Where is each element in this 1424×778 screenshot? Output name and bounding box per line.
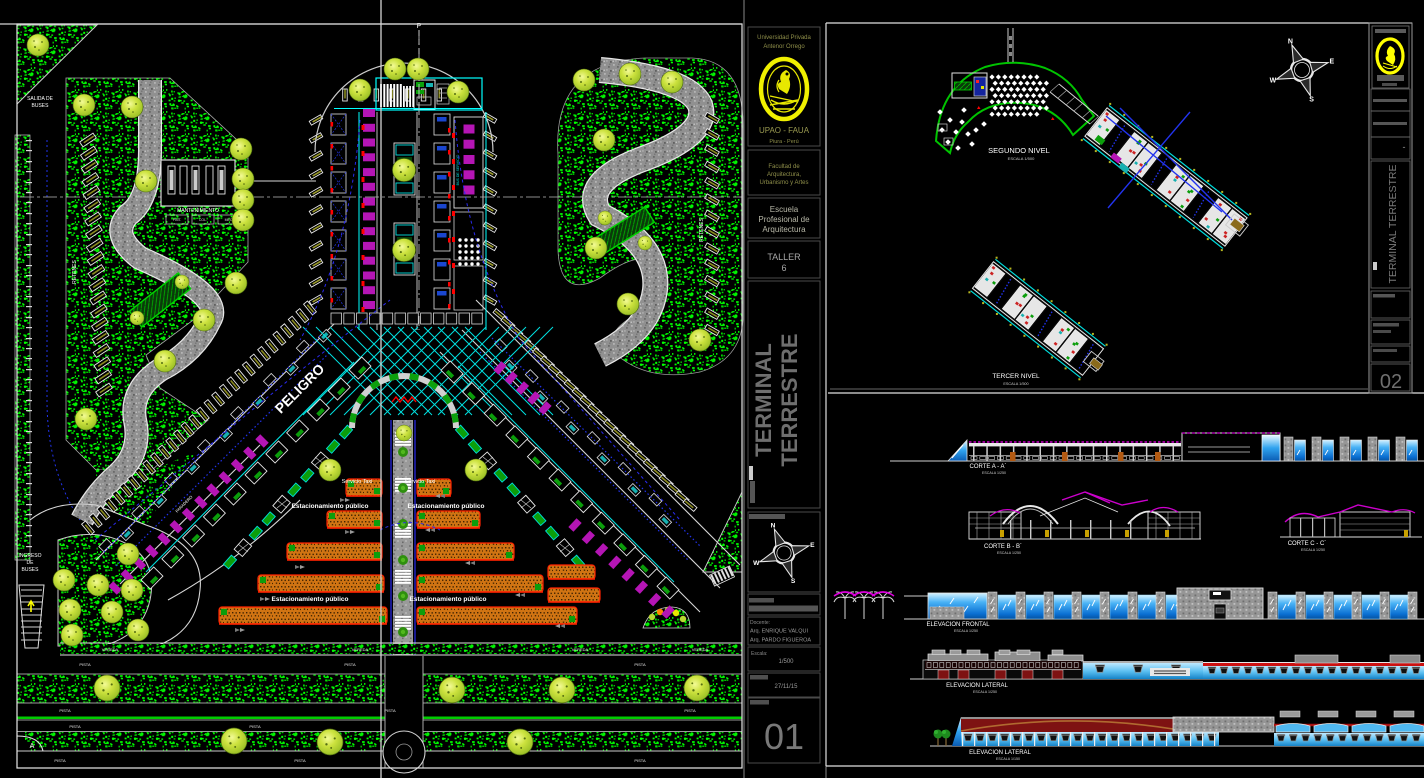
svg-text:BUSES: BUSES: [32, 103, 50, 109]
svg-text:MANTENIMIENTO: MANTENIMIENTO: [177, 208, 219, 214]
svg-text:Escala:: Escala:: [751, 651, 767, 657]
svg-text:Facultad de: Facultad de: [768, 164, 800, 170]
svg-text:S: S: [791, 578, 796, 585]
svg-text:ESCALA 1/250: ESCALA 1/250: [954, 629, 978, 633]
svg-text:PISTA: PISTA: [344, 662, 356, 667]
svg-text:ESCALA 1/150: ESCALA 1/150: [996, 757, 1020, 761]
svg-text:PISTA: PISTA: [249, 724, 261, 729]
svg-text:PISTA: PISTA: [634, 662, 646, 667]
svg-text:ESCALA 1/250: ESCALA 1/250: [1301, 548, 1325, 552]
svg-text:PISTA: PISTA: [69, 724, 81, 729]
svg-text:PISTA: PISTA: [634, 758, 646, 763]
svg-text:Arquitectura: Arquitectura: [762, 225, 806, 234]
svg-text:Antenor Orrego: Antenor Orrego: [763, 44, 805, 50]
svg-text:ESCALA 1/250: ESCALA 1/250: [982, 471, 1006, 475]
svg-text:N: N: [1288, 38, 1293, 45]
svg-text:CORTE A - A´: CORTE A - A´: [970, 464, 1007, 470]
svg-text:PISTA: PISTA: [684, 708, 696, 713]
svg-text:ELEVACION FRONTAL: ELEVACION FRONTAL: [926, 622, 990, 628]
svg-text:A: A: [30, 743, 35, 750]
svg-text:Escuela: Escuela: [770, 205, 799, 214]
svg-text:S: S: [1309, 96, 1314, 103]
svg-text:BUSES: BUSES: [22, 567, 40, 573]
svg-text:Estacionamiento público: Estacionamiento público: [410, 596, 487, 603]
svg-text:ELEVACION LATERAL: ELEVACION LATERAL: [969, 750, 1031, 756]
svg-text:6: 6: [781, 263, 786, 273]
svg-text:TERMINAL: TERMINAL: [751, 343, 776, 457]
svg-text:RETENES: RETENES: [72, 260, 78, 284]
svg-text:Piura - Perú: Piura - Perú: [769, 139, 798, 145]
svg-text:PINT.: PINT.: [173, 218, 182, 222]
svg-text:E: E: [810, 542, 815, 549]
svg-text:TALLER: TALLER: [767, 252, 801, 262]
svg-text:PISTA: PISTA: [59, 708, 71, 713]
svg-text:Servicio Taxi: Servicio Taxi: [342, 479, 373, 485]
svg-text:TERMINAL TERRESTRE: TERMINAL TERRESTRE: [1387, 164, 1399, 283]
svg-text:SALIDA DE: SALIDA DE: [27, 96, 54, 102]
svg-text:ESCALA 1/250: ESCALA 1/250: [973, 690, 997, 694]
svg-text:ESCALA 1/250: ESCALA 1/250: [997, 551, 1021, 555]
svg-text:Arq. ENRIQUE VALQUI: Arq. ENRIQUE VALQUI: [750, 629, 808, 635]
svg-text:02: 02: [1380, 371, 1402, 393]
svg-text:UPAO - FAUA: UPAO - FAUA: [759, 126, 810, 135]
svg-text:Estacionamiento público: Estacionamiento público: [408, 503, 485, 510]
svg-text:SEGUNDO NIVEL: SEGUNDO NIVEL: [988, 146, 1050, 155]
svg-text:INGRESO: INGRESO: [18, 553, 41, 559]
svg-text:W: W: [1270, 78, 1277, 85]
svg-text:Docente:: Docente:: [750, 620, 770, 626]
svg-text:-: -: [1403, 142, 1406, 152]
svg-text:VEREDA: VEREDA: [352, 647, 369, 652]
svg-text:CORTE C - C´: CORTE C - C´: [1288, 541, 1327, 547]
svg-text:PISTA: PISTA: [384, 708, 396, 713]
svg-text:CORTE B - B´: CORTE B - B´: [984, 544, 1022, 550]
svg-text:Estacionamiento público: Estacionamiento público: [272, 596, 349, 603]
svg-text:PISTA: PISTA: [294, 758, 306, 763]
svg-text:1/500: 1/500: [778, 659, 794, 665]
svg-text:DE: DE: [27, 560, 35, 566]
svg-text:TERCER NIVEL: TERCER NIVEL: [992, 373, 1040, 380]
svg-text:E: E: [1329, 58, 1334, 65]
svg-text:Profesional de: Profesional de: [758, 215, 810, 224]
svg-text:BUS DE SERVICIO: BUS DE SERVICIO: [456, 154, 460, 185]
svg-text:ESCALA 1/500: ESCALA 1/500: [1003, 382, 1028, 386]
svg-text:TERRESTRE: TERRESTRE: [777, 333, 802, 466]
svg-text:Universidad Privada: Universidad Privada: [757, 35, 811, 41]
svg-text:27/11/15: 27/11/15: [775, 684, 799, 690]
svg-text:PISTA: PISTA: [79, 662, 91, 667]
svg-text:RETENES: RETENES: [699, 218, 705, 242]
svg-text:01: 01: [764, 716, 804, 757]
svg-text:ESCALA 1/500: ESCALA 1/500: [1008, 156, 1035, 161]
svg-text:Servicio Taxi: Servicio Taxi: [405, 479, 436, 485]
svg-text:ELEVACION LATERAL: ELEVACION LATERAL: [946, 683, 1008, 689]
svg-text:Arq. PARDO FIGUEROA: Arq. PARDO FIGUEROA: [750, 638, 811, 644]
svg-text:COL.: COL.: [199, 218, 207, 222]
svg-text:Estacionamiento público: Estacionamiento público: [292, 503, 369, 510]
svg-text:PISTA: PISTA: [54, 758, 66, 763]
svg-text:Urbanismo y Artes: Urbanismo y Artes: [759, 180, 808, 186]
svg-text:Arquitectura,: Arquitectura,: [767, 172, 801, 178]
svg-text:VEREDA: VEREDA: [102, 647, 119, 652]
svg-text:VEREDA: VEREDA: [692, 647, 709, 652]
svg-text:VEREDA: VEREDA: [572, 647, 589, 652]
svg-text:N: N: [771, 523, 776, 530]
svg-text:W: W: [753, 560, 760, 567]
